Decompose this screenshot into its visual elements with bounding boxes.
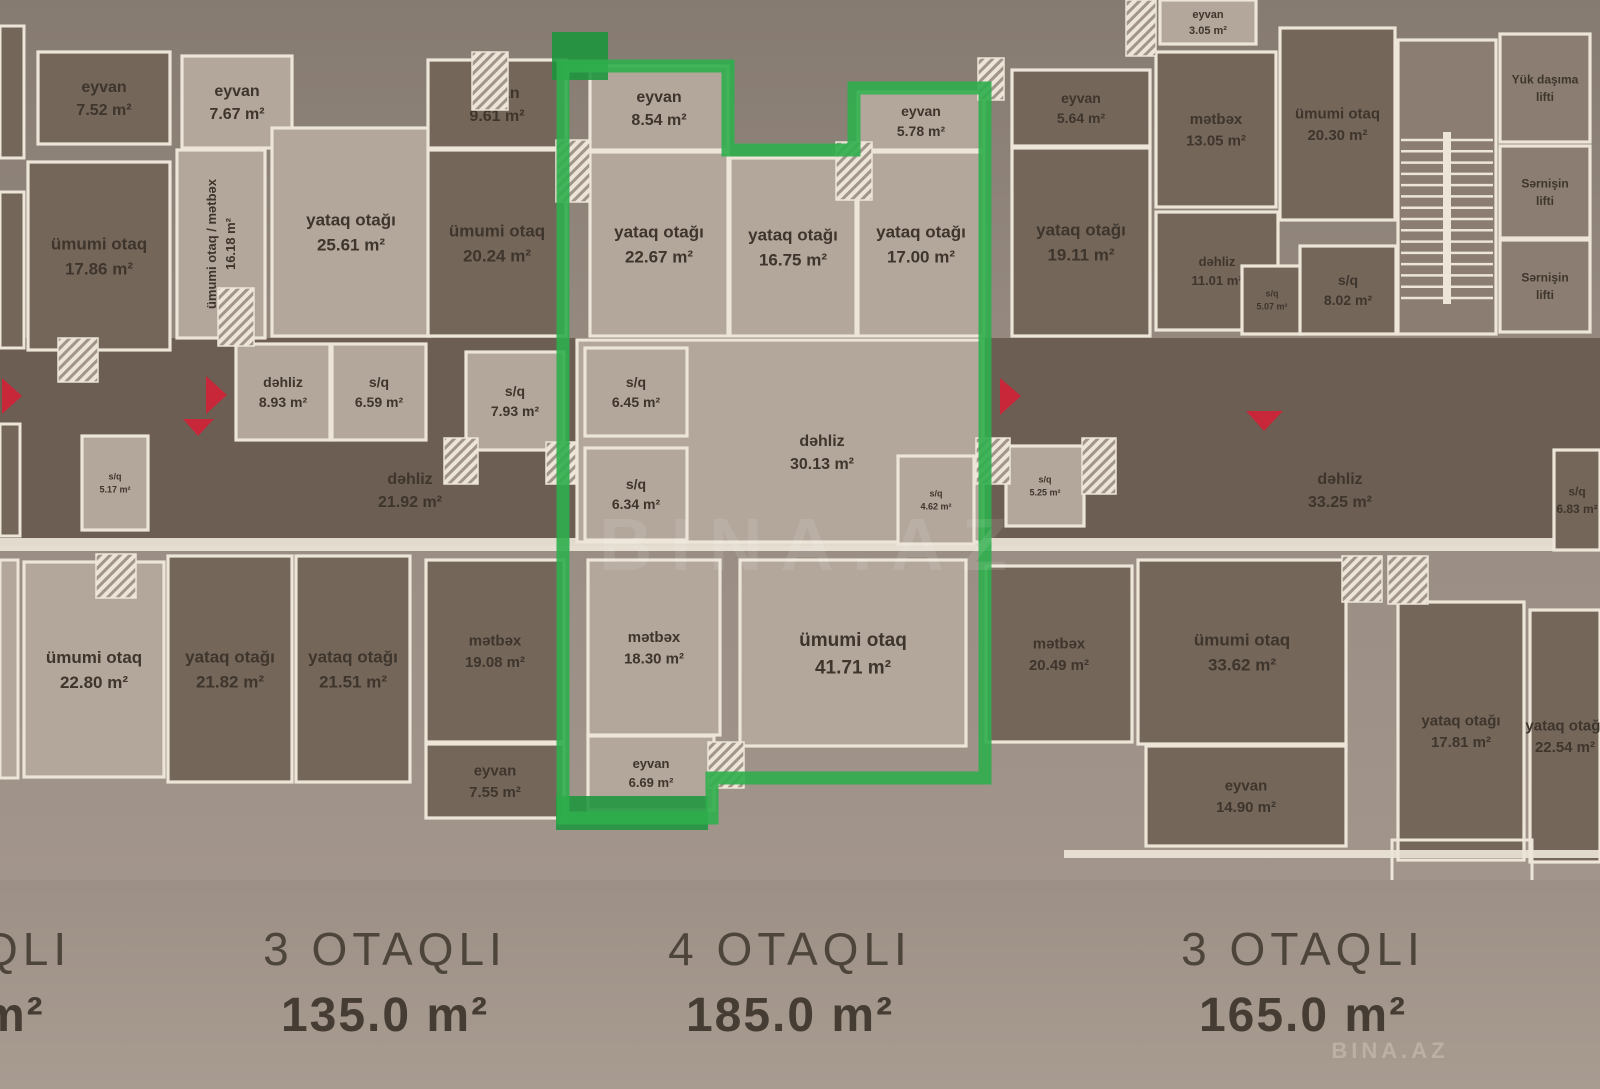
- room-kitchen-2049: [986, 566, 1132, 742]
- room-wc-507: [1242, 266, 1302, 334]
- room-label-line: eyvan: [1225, 777, 1268, 794]
- room-bedroom-1700: [858, 152, 984, 336]
- room-balcony-755: [426, 744, 564, 818]
- room-label-line: 19.11 m²: [1047, 245, 1114, 264]
- room-hall-893: [236, 344, 330, 440]
- room-label-line: eyvan: [1061, 90, 1101, 106]
- watermark-center: BINA.AZ: [599, 502, 1025, 587]
- room-label-line: 19.08 m²: [465, 654, 525, 671]
- partial-room: [0, 560, 18, 778]
- room-label-line: 17.86 m²: [65, 259, 133, 278]
- room-cargo-lift: [1500, 34, 1590, 142]
- room-label-line: 17.81 m²: [1431, 734, 1491, 751]
- room-label-line: 21.82 m²: [196, 672, 264, 691]
- apartment-area-label: 185.0 m²: [668, 988, 912, 1043]
- room-label-line: s/q: [1265, 289, 1278, 299]
- wall-pillar: [444, 438, 478, 484]
- room-label-line: 21.92 m²: [378, 494, 442, 511]
- room-balcony-305: [1160, 0, 1256, 44]
- room-label-line: eyvan: [633, 756, 670, 771]
- room-label-line: 6.69 m²: [629, 775, 674, 790]
- building-edge-wall: [1064, 850, 1600, 858]
- apartment-summary-3otaqli-135: 3 OTAQLI 135.0 m²: [263, 922, 507, 1043]
- room-label-line: 22.80 m²: [60, 673, 128, 692]
- room-label-line: dəhliz: [799, 433, 844, 450]
- room-label-line: s/q: [108, 472, 121, 482]
- room-label-line: 8.02 m²: [1324, 292, 1373, 308]
- room-label-line: s/q: [1338, 272, 1358, 288]
- room-label-line: yataq otağı: [185, 648, 275, 667]
- room-label-line: 20.49 m²: [1029, 657, 1089, 674]
- room-label-line: 16.18 m²: [223, 217, 238, 270]
- room-label-line: 21.51 m²: [319, 672, 387, 691]
- room-label-line: s/q: [1568, 485, 1585, 499]
- partial-room: [0, 192, 24, 348]
- room-living-2280: [24, 562, 164, 777]
- room-label-line: yataq otağı: [748, 226, 838, 245]
- wall-pillar: [96, 554, 136, 598]
- room-label-line: eyvan: [636, 89, 681, 106]
- wall-pillar: [1082, 438, 1116, 494]
- room-label-line: 7.67 m²: [209, 106, 264, 123]
- room-label-line: ümumi otaq: [449, 222, 545, 241]
- room-label-line: 5.25 m²: [1029, 488, 1060, 498]
- room-label-line: ümumi otaq: [799, 630, 907, 651]
- floorplan-svg: eyvan7.52 m²eyvan7.67 m²ümumi otaq17.86 …: [0, 0, 1600, 880]
- room-balcony-1490: [1146, 746, 1346, 846]
- room-label-line: s/q: [369, 374, 389, 390]
- room-label-line: s/q: [626, 476, 646, 492]
- room-label-line: 33.62 m²: [1208, 655, 1276, 674]
- room-bedroom-2151: [296, 556, 410, 782]
- room-label-line: 20.30 m²: [1307, 127, 1367, 144]
- room-label-line: 7.55 m²: [469, 784, 521, 801]
- apartment-summary-partial: QLI m²: [0, 922, 71, 1043]
- room-balcony-752: [38, 52, 170, 144]
- room-label-line: eyvan: [901, 103, 941, 119]
- room-label-line: 22.54 m²: [1535, 739, 1595, 756]
- room-label-line: ümumi otaq: [46, 648, 142, 667]
- room-kitchen-1908: [426, 560, 564, 742]
- apartment-area-label: m²: [0, 988, 71, 1043]
- room-label-line: 7.52 m²: [76, 102, 131, 119]
- room-label-line: eyvan: [1192, 9, 1223, 21]
- room-label-line: 8.54 m²: [631, 112, 686, 129]
- floorplan-page: eyvan7.52 m²eyvan7.67 m²ümumi otaq17.86 …: [0, 0, 1600, 1089]
- room-living-4171: [740, 560, 966, 746]
- room-label-line: eyvan: [81, 79, 126, 96]
- room-label-line: s/q: [505, 383, 525, 399]
- room-label-line: yataq otağı: [1525, 717, 1600, 734]
- room-label-line: 6.45 m²: [612, 394, 661, 410]
- room-label-line: yataq otağı: [308, 648, 398, 667]
- room-label-line: 25.61 m²: [317, 235, 385, 254]
- room-passenger-lift-2: [1500, 240, 1590, 332]
- room-label-line: mətbəx: [1190, 111, 1243, 128]
- room-label-line: ümumi otaq: [51, 235, 147, 254]
- room-bedroom-2561: [272, 128, 430, 336]
- room-wc-802: [1300, 246, 1396, 334]
- room-bedroom-1911: [1012, 148, 1150, 336]
- wall-pillar: [218, 288, 254, 346]
- room-label-line: dəhliz: [1199, 254, 1236, 269]
- room-living-1786: [28, 162, 170, 350]
- room-label-line: lifti: [1536, 90, 1554, 104]
- room-balcony-578: [858, 92, 984, 150]
- room-label-line: yataq otağı: [1036, 221, 1126, 240]
- room-label-line: dəhliz: [263, 374, 303, 390]
- room-wc-517: [82, 436, 148, 530]
- room-wc-793: [466, 352, 564, 450]
- room-label-line: yataq otağı: [614, 223, 704, 242]
- room-label-line: mətbəx: [1033, 635, 1086, 652]
- room-bedroom-2254: [1530, 610, 1600, 862]
- room-label-line: eyvan: [474, 762, 517, 779]
- wall-pillar: [1342, 556, 1382, 602]
- room-label-line: mətbəx: [628, 629, 681, 646]
- apartment-area-label: 135.0 m²: [263, 988, 507, 1043]
- partial-room: [0, 26, 24, 158]
- room-label-line: dəhliz: [387, 471, 432, 488]
- room-living-2030: [1280, 28, 1395, 220]
- room-label-line: yataq otağı: [306, 211, 396, 230]
- room-living-2024: [428, 150, 566, 336]
- room-label-line: 11.01 m²: [1191, 273, 1243, 288]
- room-living-3362: [1138, 560, 1346, 744]
- room-label-line: 7.93 m²: [491, 403, 540, 419]
- room-label-line: 5.07 m²: [1256, 302, 1287, 312]
- room-label-line: 41.71 m²: [815, 657, 891, 678]
- room-wc-683: [1554, 450, 1600, 550]
- room-bedroom-1781: [1398, 602, 1524, 860]
- room-label-line: 8.93 m²: [259, 394, 308, 410]
- room-label-line: lifti: [1536, 194, 1554, 208]
- apartment-area-label: 165.0 m²: [1181, 988, 1425, 1043]
- room-label-line: s/q: [929, 489, 942, 499]
- room-label-line: dəhliz: [1317, 471, 1362, 488]
- room-label-line: 5.78 m²: [897, 123, 946, 139]
- wall-pillar: [1388, 556, 1428, 604]
- room-label-line: Yük daşıma: [1512, 73, 1579, 87]
- room-label-line: 6.83 m²: [1556, 502, 1597, 516]
- room-label-line: yataq otağı: [1421, 712, 1500, 729]
- room-label-line: lifti: [1536, 288, 1554, 302]
- room-label-line: 16.75 m²: [759, 250, 827, 269]
- room-label-line: 3.05 m²: [1189, 25, 1227, 37]
- room-label-line: 33.25 m²: [1308, 494, 1372, 511]
- room-label-line: 5.64 m²: [1057, 110, 1106, 126]
- room-balcony-564: [1012, 70, 1150, 146]
- wall-pillar: [1126, 0, 1156, 56]
- watermark-corner: BINA.AZ: [1331, 1038, 1448, 1064]
- room-label-line: 17.00 m²: [887, 247, 955, 266]
- room-label-line: ümumi otaq: [1295, 105, 1380, 122]
- room-label-line: Sərnişin: [1521, 271, 1568, 285]
- room-label-line: 13.05 m²: [1186, 133, 1246, 150]
- room-label-line: s/q: [1038, 475, 1051, 485]
- wall-pillar: [58, 338, 98, 382]
- apartment-type-label: QLI: [0, 922, 71, 976]
- room-label-line: 6.59 m²: [355, 394, 404, 410]
- apartment-type-label: 3 OTAQLI: [1181, 922, 1425, 976]
- partial-room: [0, 424, 20, 536]
- room-wc-645: [585, 348, 687, 436]
- room-label-line: 20.24 m²: [463, 246, 531, 265]
- room-label-line: 22.67 m²: [625, 247, 693, 266]
- room-label-line: 30.13 m²: [790, 456, 854, 473]
- room-label-line: 5.17 m²: [99, 485, 130, 495]
- room-label-line: s/q: [626, 374, 646, 390]
- room-balcony-854: [590, 66, 728, 150]
- room-bedroom-2267: [590, 152, 728, 336]
- room-kitchen-1305: [1156, 52, 1276, 207]
- room-label-line: 18.30 m²: [624, 651, 684, 668]
- room-label-line: ümumi otaq / mətbəx: [204, 178, 219, 309]
- room-label-line: 14.90 m²: [1216, 799, 1276, 816]
- apartment-type-label: 4 OTAQLI: [668, 922, 912, 976]
- apartment-type-label: 3 OTAQLI: [263, 922, 507, 976]
- room-bedroom-2182: [168, 556, 292, 782]
- room-label-line: yataq otağı: [876, 223, 966, 242]
- stair-spine: [1443, 132, 1451, 304]
- room-label-line: eyvan: [214, 83, 259, 100]
- wall-pillar: [472, 52, 508, 110]
- room-label-line: ümumi otaq: [1194, 631, 1290, 650]
- apartment-summary-4otaqli-185: 4 OTAQLI 185.0 m²: [668, 922, 912, 1043]
- room-passenger-lift-1: [1500, 146, 1590, 238]
- apartment-summary-3otaqli-165: 3 OTAQLI 165.0 m²: [1181, 922, 1425, 1043]
- room-wc-659: [332, 344, 426, 440]
- room-label-line: Sərnişin: [1521, 177, 1568, 191]
- room-label-line: mətbəx: [469, 632, 522, 649]
